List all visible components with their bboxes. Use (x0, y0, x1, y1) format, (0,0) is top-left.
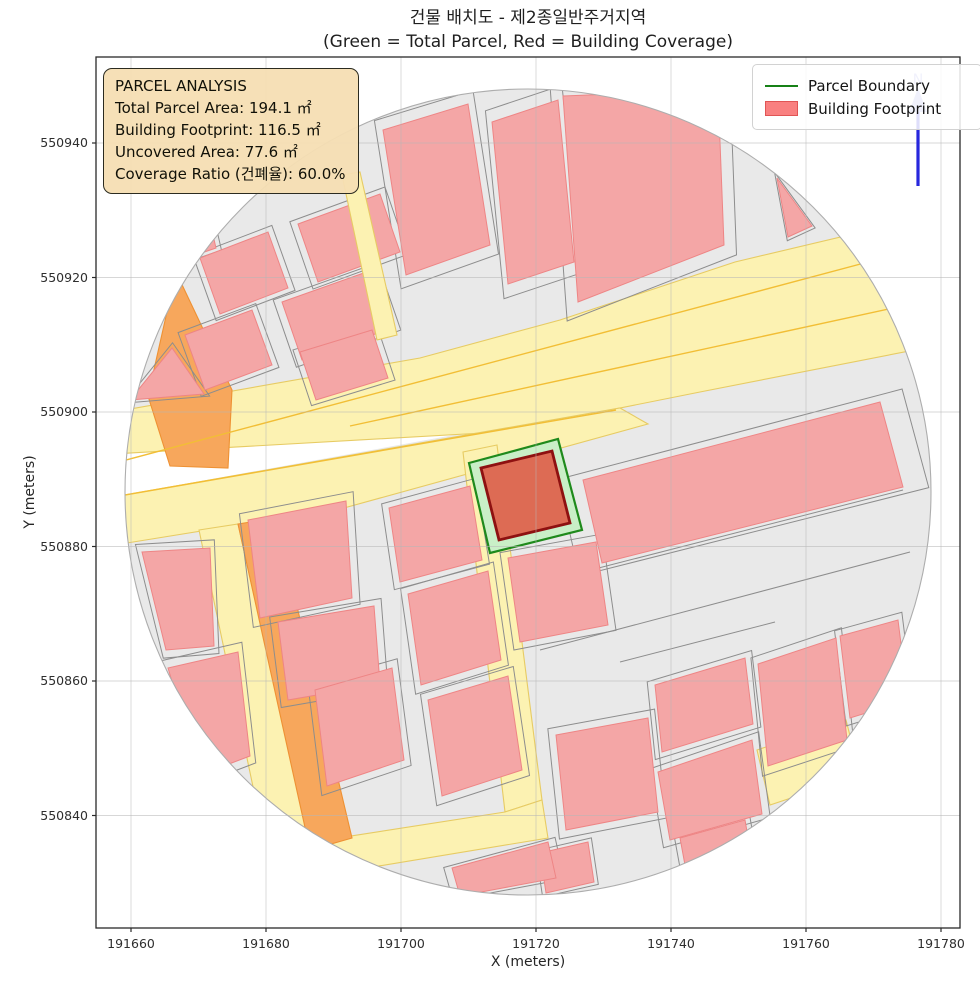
analysis-heading: PARCEL ANALYSIS (115, 75, 347, 97)
coverage-ratio: Coverage Ratio (건폐율): 60.0% (115, 163, 347, 185)
legend-label: Building Footprint (808, 100, 941, 118)
legend-item-building-footprint: Building Footprint (765, 97, 969, 120)
building (508, 542, 608, 642)
red-patch-swatch (765, 101, 798, 116)
y-tick-label: 550880 (28, 539, 88, 554)
figure: 건물 배치도 - 제2종일반주거지역 (Green = Total Parcel… (0, 0, 980, 990)
building (556, 718, 658, 830)
total-parcel-area: Total Parcel Area: 194.1 ㎡ (115, 97, 347, 119)
building-footprint-area: Building Footprint: 116.5 ㎡ (115, 119, 347, 141)
x-axis-label: X (meters) (96, 954, 960, 970)
legend-label: Parcel Boundary (808, 77, 930, 95)
x-tick-label: 191700 (366, 936, 436, 951)
green-line-swatch (765, 85, 798, 87)
x-tick-label: 191660 (96, 936, 166, 951)
y-tick-label: 550900 (28, 404, 88, 419)
y-tick-label: 550860 (28, 673, 88, 688)
parcel-analysis-box: PARCEL ANALYSIS Total Parcel Area: 194.1… (103, 68, 359, 194)
building (840, 620, 908, 718)
x-tick-label: 191740 (636, 936, 706, 951)
y-axis-label: Y (meters) (22, 432, 38, 552)
y-tick-label: 550940 (28, 135, 88, 150)
building (168, 652, 250, 775)
x-tick-label: 191720 (501, 936, 571, 951)
legend-item-parcel-boundary: Parcel Boundary (765, 74, 969, 97)
target-building-footprint (481, 451, 570, 540)
building (248, 501, 352, 618)
x-tick-label: 191760 (771, 936, 841, 951)
y-tick-label: 550840 (28, 808, 88, 823)
y-tick-label: 550920 (28, 270, 88, 285)
x-tick-label: 191680 (231, 936, 301, 951)
uncovered-area: Uncovered Area: 77.6 ㎡ (115, 141, 347, 163)
x-tick-label: 191780 (906, 936, 976, 951)
legend: Parcel Boundary Building Footprint (752, 64, 980, 130)
